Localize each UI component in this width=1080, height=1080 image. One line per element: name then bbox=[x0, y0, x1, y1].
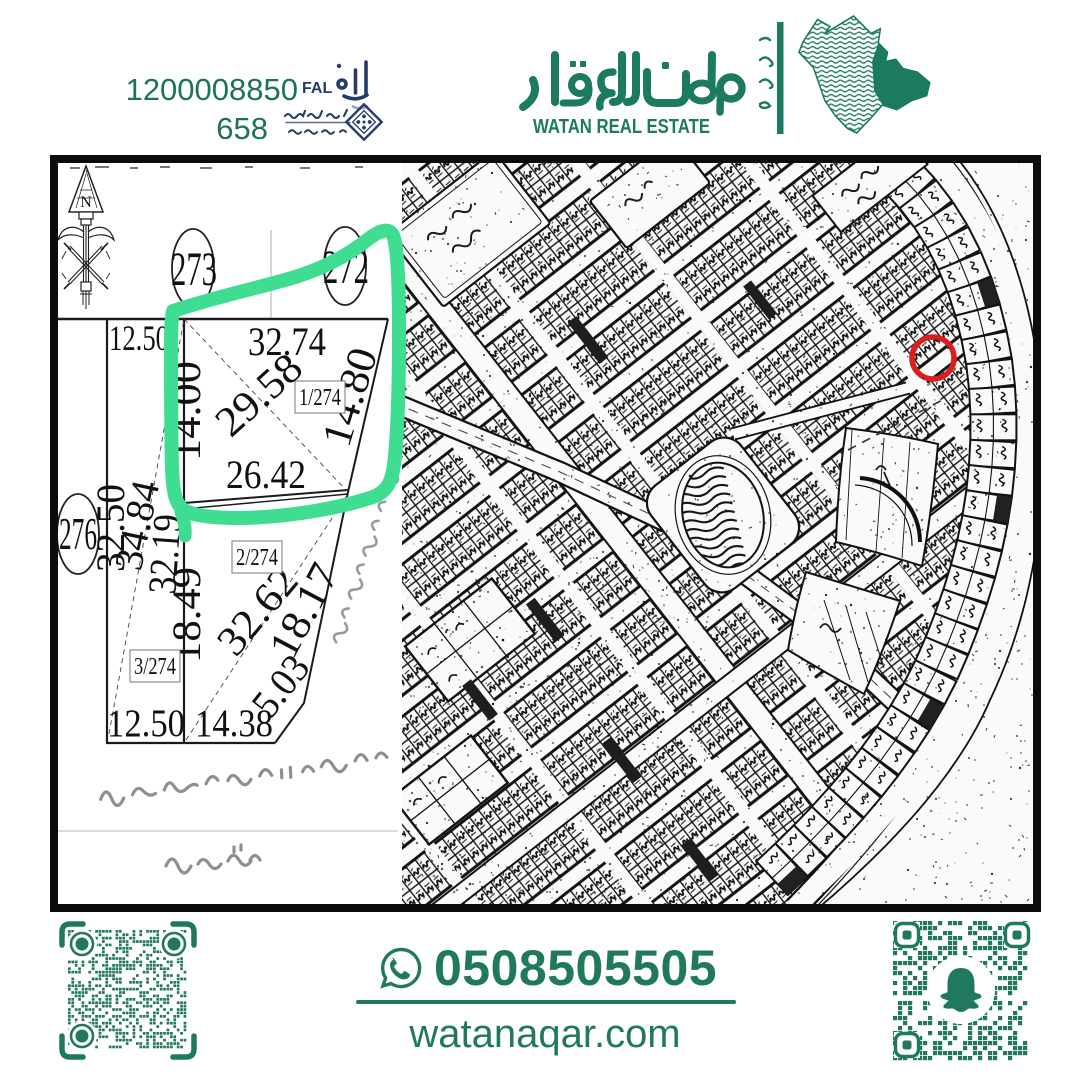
svg-text:watanaqar.com: watanaqar.com bbox=[408, 1012, 680, 1056]
svg-text:1200008850: 1200008850 bbox=[126, 72, 298, 107]
svg-text:FAL: FAL bbox=[302, 80, 332, 97]
svg-text:2/274: 2/274 bbox=[236, 545, 278, 571]
svg-text:12.50: 12.50 bbox=[107, 702, 185, 745]
svg-text:1/274: 1/274 bbox=[299, 385, 341, 411]
svg-text:26.42: 26.42 bbox=[226, 452, 306, 497]
svg-text:N: N bbox=[80, 194, 92, 211]
svg-text:14.38: 14.38 bbox=[195, 702, 273, 745]
svg-text:WATAN REAL ESTATE: WATAN REAL ESTATE bbox=[533, 116, 710, 138]
svg-text:18.49: 18.49 bbox=[164, 567, 209, 663]
svg-text:12.50: 12.50 bbox=[109, 318, 169, 358]
svg-text:273: 273 bbox=[171, 243, 217, 296]
svg-text:658: 658 bbox=[216, 111, 268, 146]
svg-text:3/274: 3/274 bbox=[134, 654, 176, 680]
svg-text:0508505505: 0508505505 bbox=[434, 940, 717, 996]
